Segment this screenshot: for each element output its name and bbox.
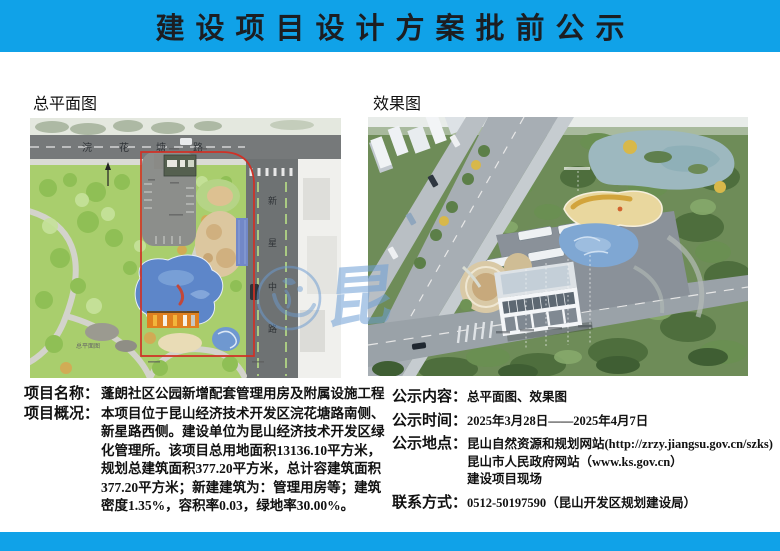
- overview-line: 规划总建筑面积377.20平方米，总计容建筑面积: [101, 460, 385, 479]
- notice-content-value: 总平面图、效果图: [467, 389, 567, 407]
- page-title: 建设项目设计方案批前公示: [144, 5, 635, 47]
- overview-line: 新星路西侧。建设单位为昆山经济技术开发区绿: [101, 423, 385, 442]
- overview-line: 密度1.35%，容积率0.03，绿地率30.00%。: [101, 497, 385, 516]
- site-plan-label: 总平面图: [33, 90, 97, 114]
- notice-content-label: 公示内容：: [392, 387, 467, 406]
- overview-line: 本项目位于昆山经济技术开发区浣花塘路南侧、: [101, 405, 385, 424]
- overview-line: 377.20平方米；新建建筑为：管理用房等；建筑: [101, 479, 385, 498]
- notice-content-row: 公示内容： 总平面图、效果图: [392, 387, 764, 407]
- notice-time-value: 2025年3月28日——2025年4月7日: [467, 413, 648, 431]
- public-notice-page: 建设项目设计方案批前公示 总平面图 效果图 浣花塘路: [0, 0, 780, 551]
- rendering-label: 效果图: [373, 90, 421, 114]
- footer-banner: [0, 532, 780, 551]
- header-banner: 建设项目设计方案批前公示: [0, 0, 780, 52]
- project-name-row: 项目名称： 蓬朗社区公园新增配套管理用房及附属设施工程: [24, 384, 376, 404]
- contact-value: 0512-50197590（昆山开发区规划建设局）: [467, 495, 696, 513]
- notice-details: 公示内容： 总平面图、效果图 公示时间： 2025年3月28日——2025年4月…: [392, 387, 764, 516]
- project-name-value: 蓬朗社区公园新增配套管理用房及附属设施工程: [101, 385, 385, 404]
- site-plan-caption: 总平面图: [76, 342, 100, 350]
- notice-time-row: 公示时间： 2025年3月28日——2025年4月7日: [392, 411, 764, 431]
- project-overview-row: 项目概况： 本项目位于昆山经济技术开发区浣花塘路南侧、 新星路西侧。建设单位为昆…: [24, 404, 376, 516]
- notice-location-row: 公示地点： 昆山自然资源和规划网站(http://zrzy.jiangsu.go…: [392, 434, 764, 489]
- notice-location-line: 昆山市人民政府网站（www.ks.gov.cn）: [467, 454, 773, 472]
- road-right-char-4: 路: [268, 323, 277, 334]
- rendering-image: [368, 117, 748, 376]
- contact-label: 联系方式：: [392, 493, 467, 512]
- project-name-label: 项目名称：: [24, 384, 99, 403]
- road-right-char-2: 星: [268, 238, 277, 248]
- overview-line: 化管理所。该项目总用地面积13136.10平方米，: [101, 442, 385, 461]
- road-right-char-1: 新: [268, 195, 277, 206]
- notice-location-line: 建设项目现场: [467, 471, 773, 489]
- contact-row: 联系方式： 0512-50197590（昆山开发区规划建设局）: [392, 493, 764, 513]
- notice-time-label: 公示时间：: [392, 411, 467, 430]
- rendering-graphic: [368, 117, 748, 376]
- notice-location-line: 昆山自然资源和规划网站(http://zrzy.jiangsu.gov.cn/s…: [467, 436, 773, 454]
- site-plan-graphic: 浣花塘路 新 星 中 路: [30, 118, 341, 378]
- project-details: 项目名称： 蓬朗社区公园新增配套管理用房及附属设施工程 项目概况： 本项目位于昆…: [24, 384, 376, 516]
- site-plan-image: 浣花塘路 新 星 中 路: [30, 118, 341, 378]
- notice-location-label: 公示地点：: [392, 434, 467, 453]
- project-overview-label: 项目概况：: [24, 404, 99, 423]
- road-right-char-3: 中: [268, 281, 277, 292]
